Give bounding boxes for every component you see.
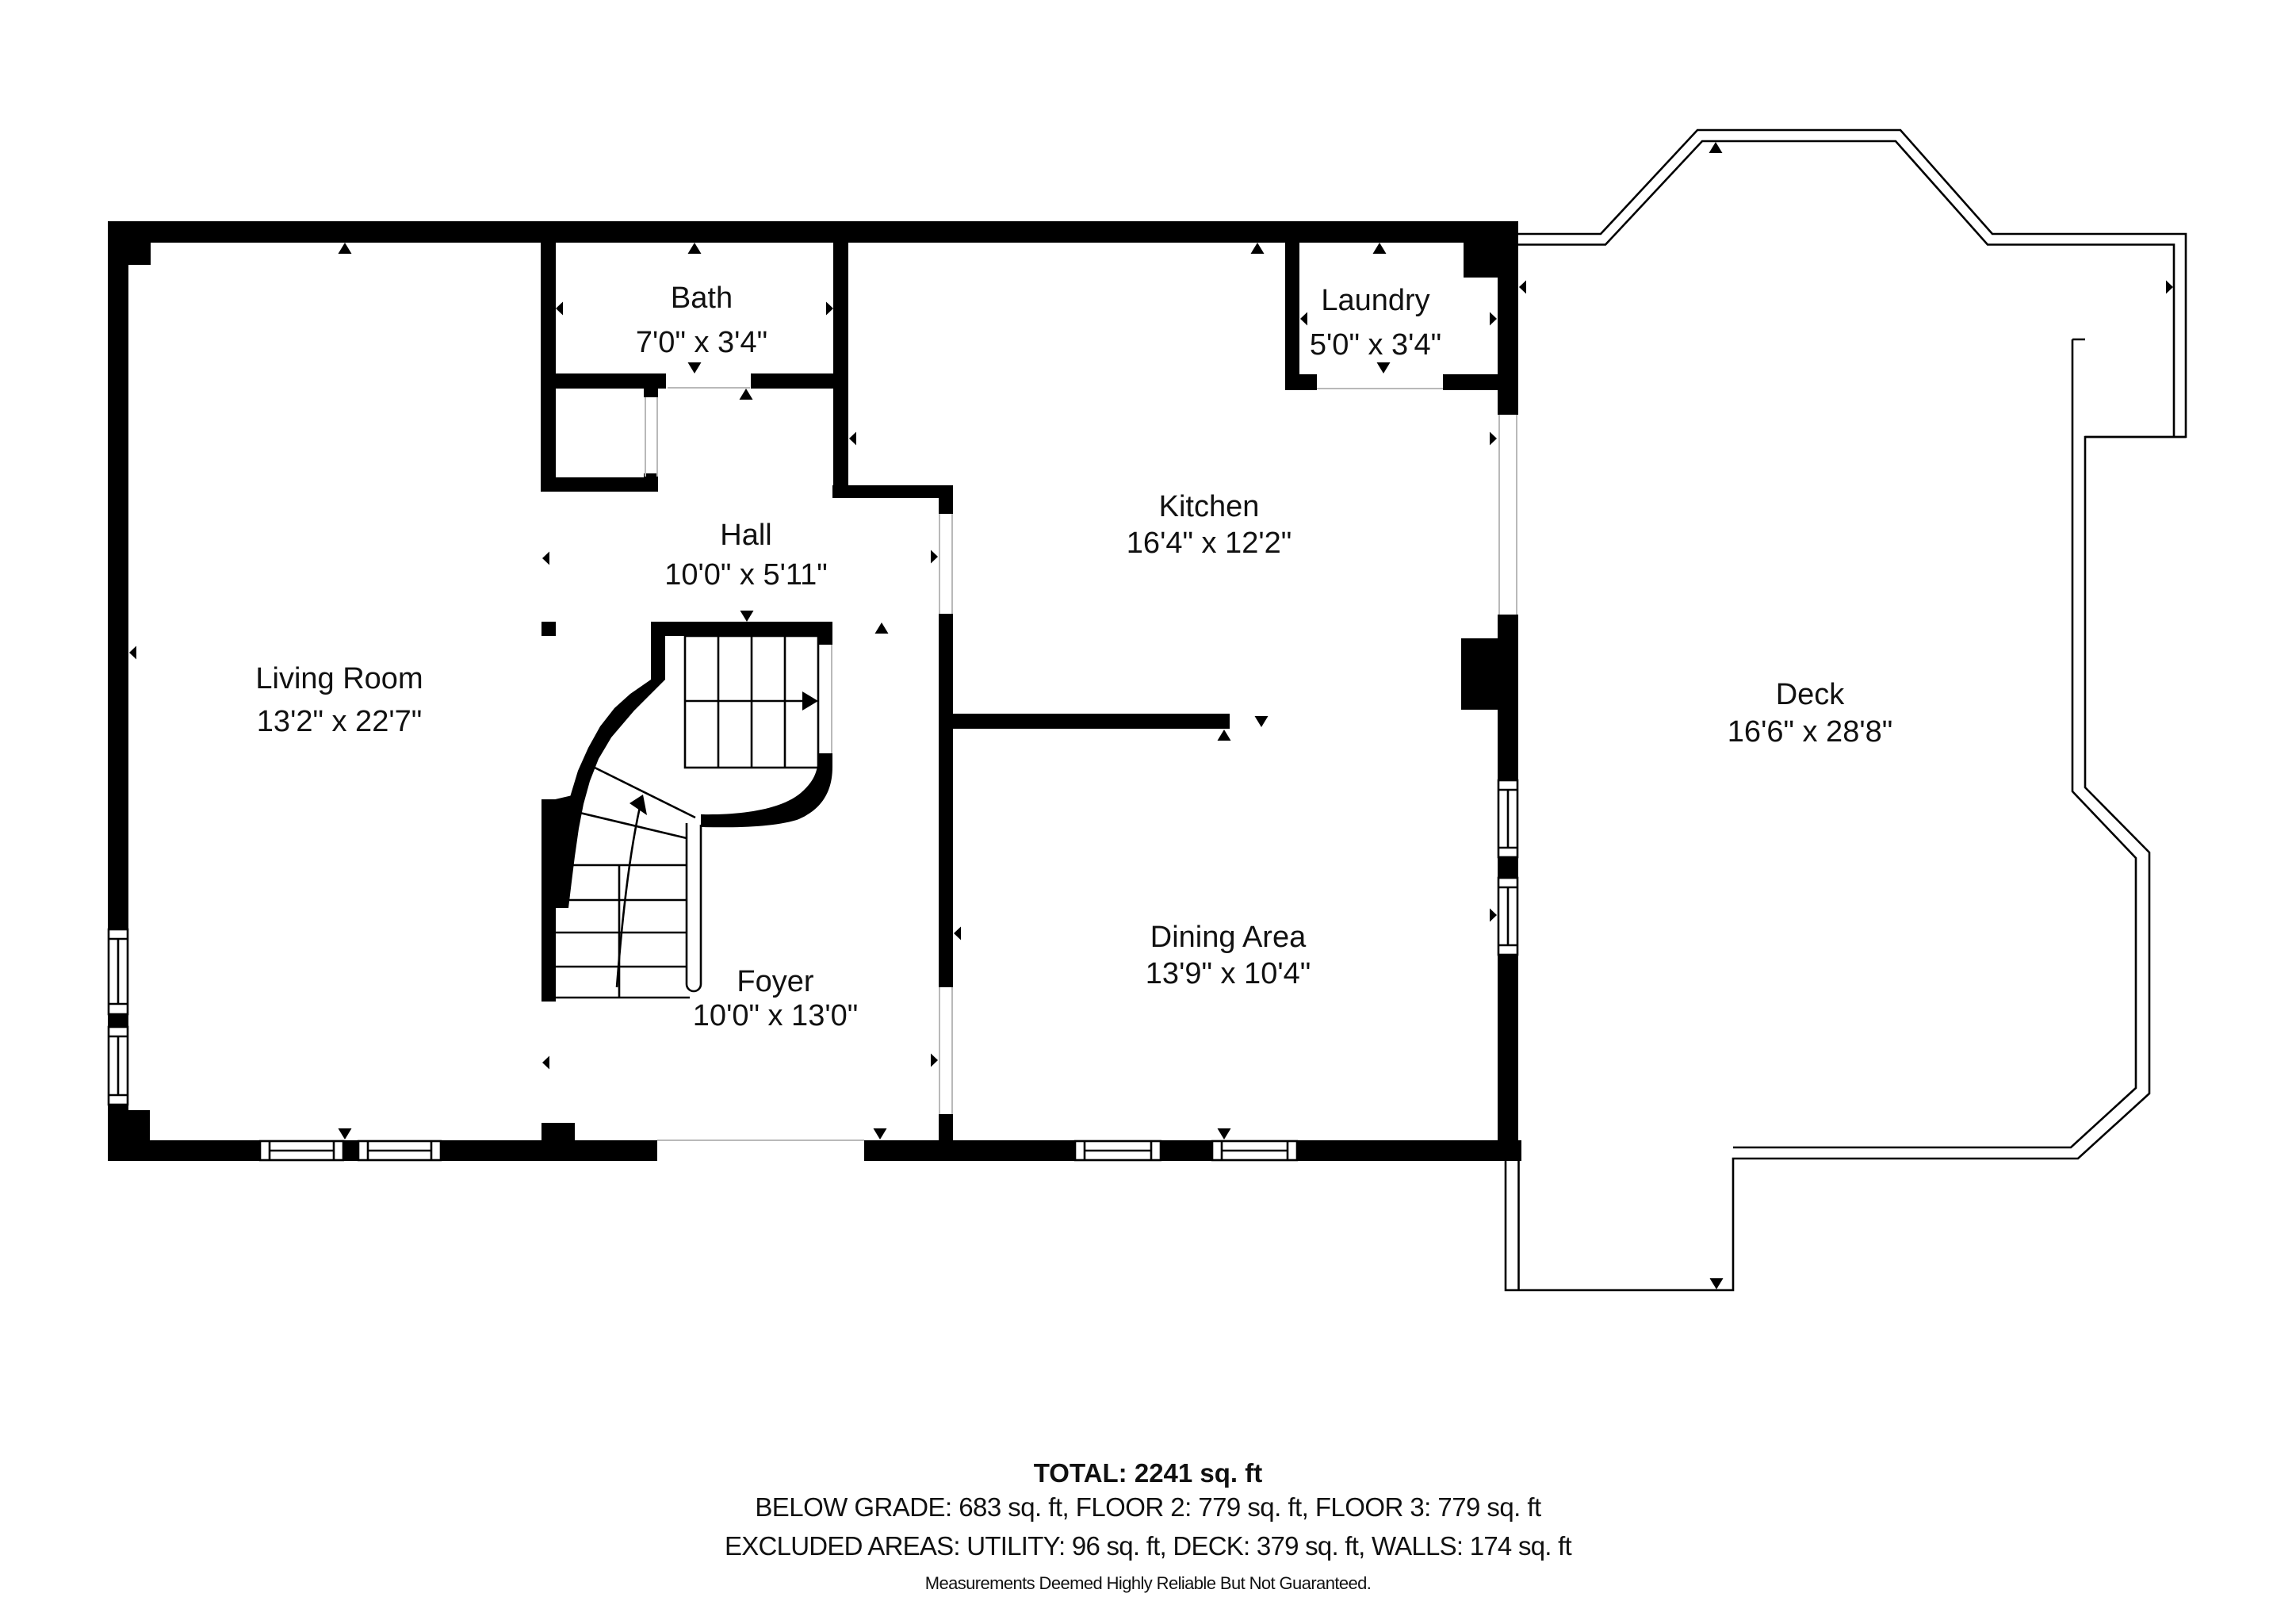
svg-text:Laundry: Laundry: [1321, 284, 1429, 317]
svg-text:TOTAL: 2241 sq. ft: TOTAL: 2241 sq. ft: [1034, 1458, 1263, 1488]
svg-text:EXCLUDED AREAS: UTILITY: 96 sq: EXCLUDED AREAS: UTILITY: 96 sq. ft, DECK…: [725, 1531, 1572, 1561]
svg-text:10'0" x 5'11": 10'0" x 5'11": [664, 558, 828, 592]
svg-text:BELOW GRADE: 683 sq. ft, FLOOR: BELOW GRADE: 683 sq. ft, FLOOR 2: 779 sq…: [755, 1492, 1541, 1522]
svg-text:Hall: Hall: [720, 519, 771, 552]
svg-text:16'6" x 28'8": 16'6" x 28'8": [1728, 715, 1892, 749]
svg-text:Measurements Deemed Highly Rel: Measurements Deemed Highly Reliable But …: [925, 1573, 1372, 1593]
svg-text:Bath: Bath: [671, 282, 733, 315]
svg-text:5'0" x 3'4": 5'0" x 3'4": [1310, 328, 1441, 362]
svg-text:Living Room: Living Room: [255, 662, 423, 695]
svg-text:Dining Area: Dining Area: [1150, 921, 1307, 954]
svg-text:10'0" x 13'0": 10'0" x 13'0": [693, 999, 858, 1032]
svg-text:Foyer: Foyer: [737, 965, 813, 998]
svg-text:13'9" x 10'4": 13'9" x 10'4": [1146, 957, 1311, 990]
svg-text:Kitchen: Kitchen: [1159, 490, 1260, 523]
svg-text:Deck: Deck: [1776, 678, 1846, 711]
svg-text:13'2" x 22'7": 13'2" x 22'7": [257, 705, 422, 738]
svg-text:16'4" x 12'2": 16'4" x 12'2": [1127, 527, 1291, 560]
svg-text:7'0" x 3'4": 7'0" x 3'4": [636, 326, 767, 359]
